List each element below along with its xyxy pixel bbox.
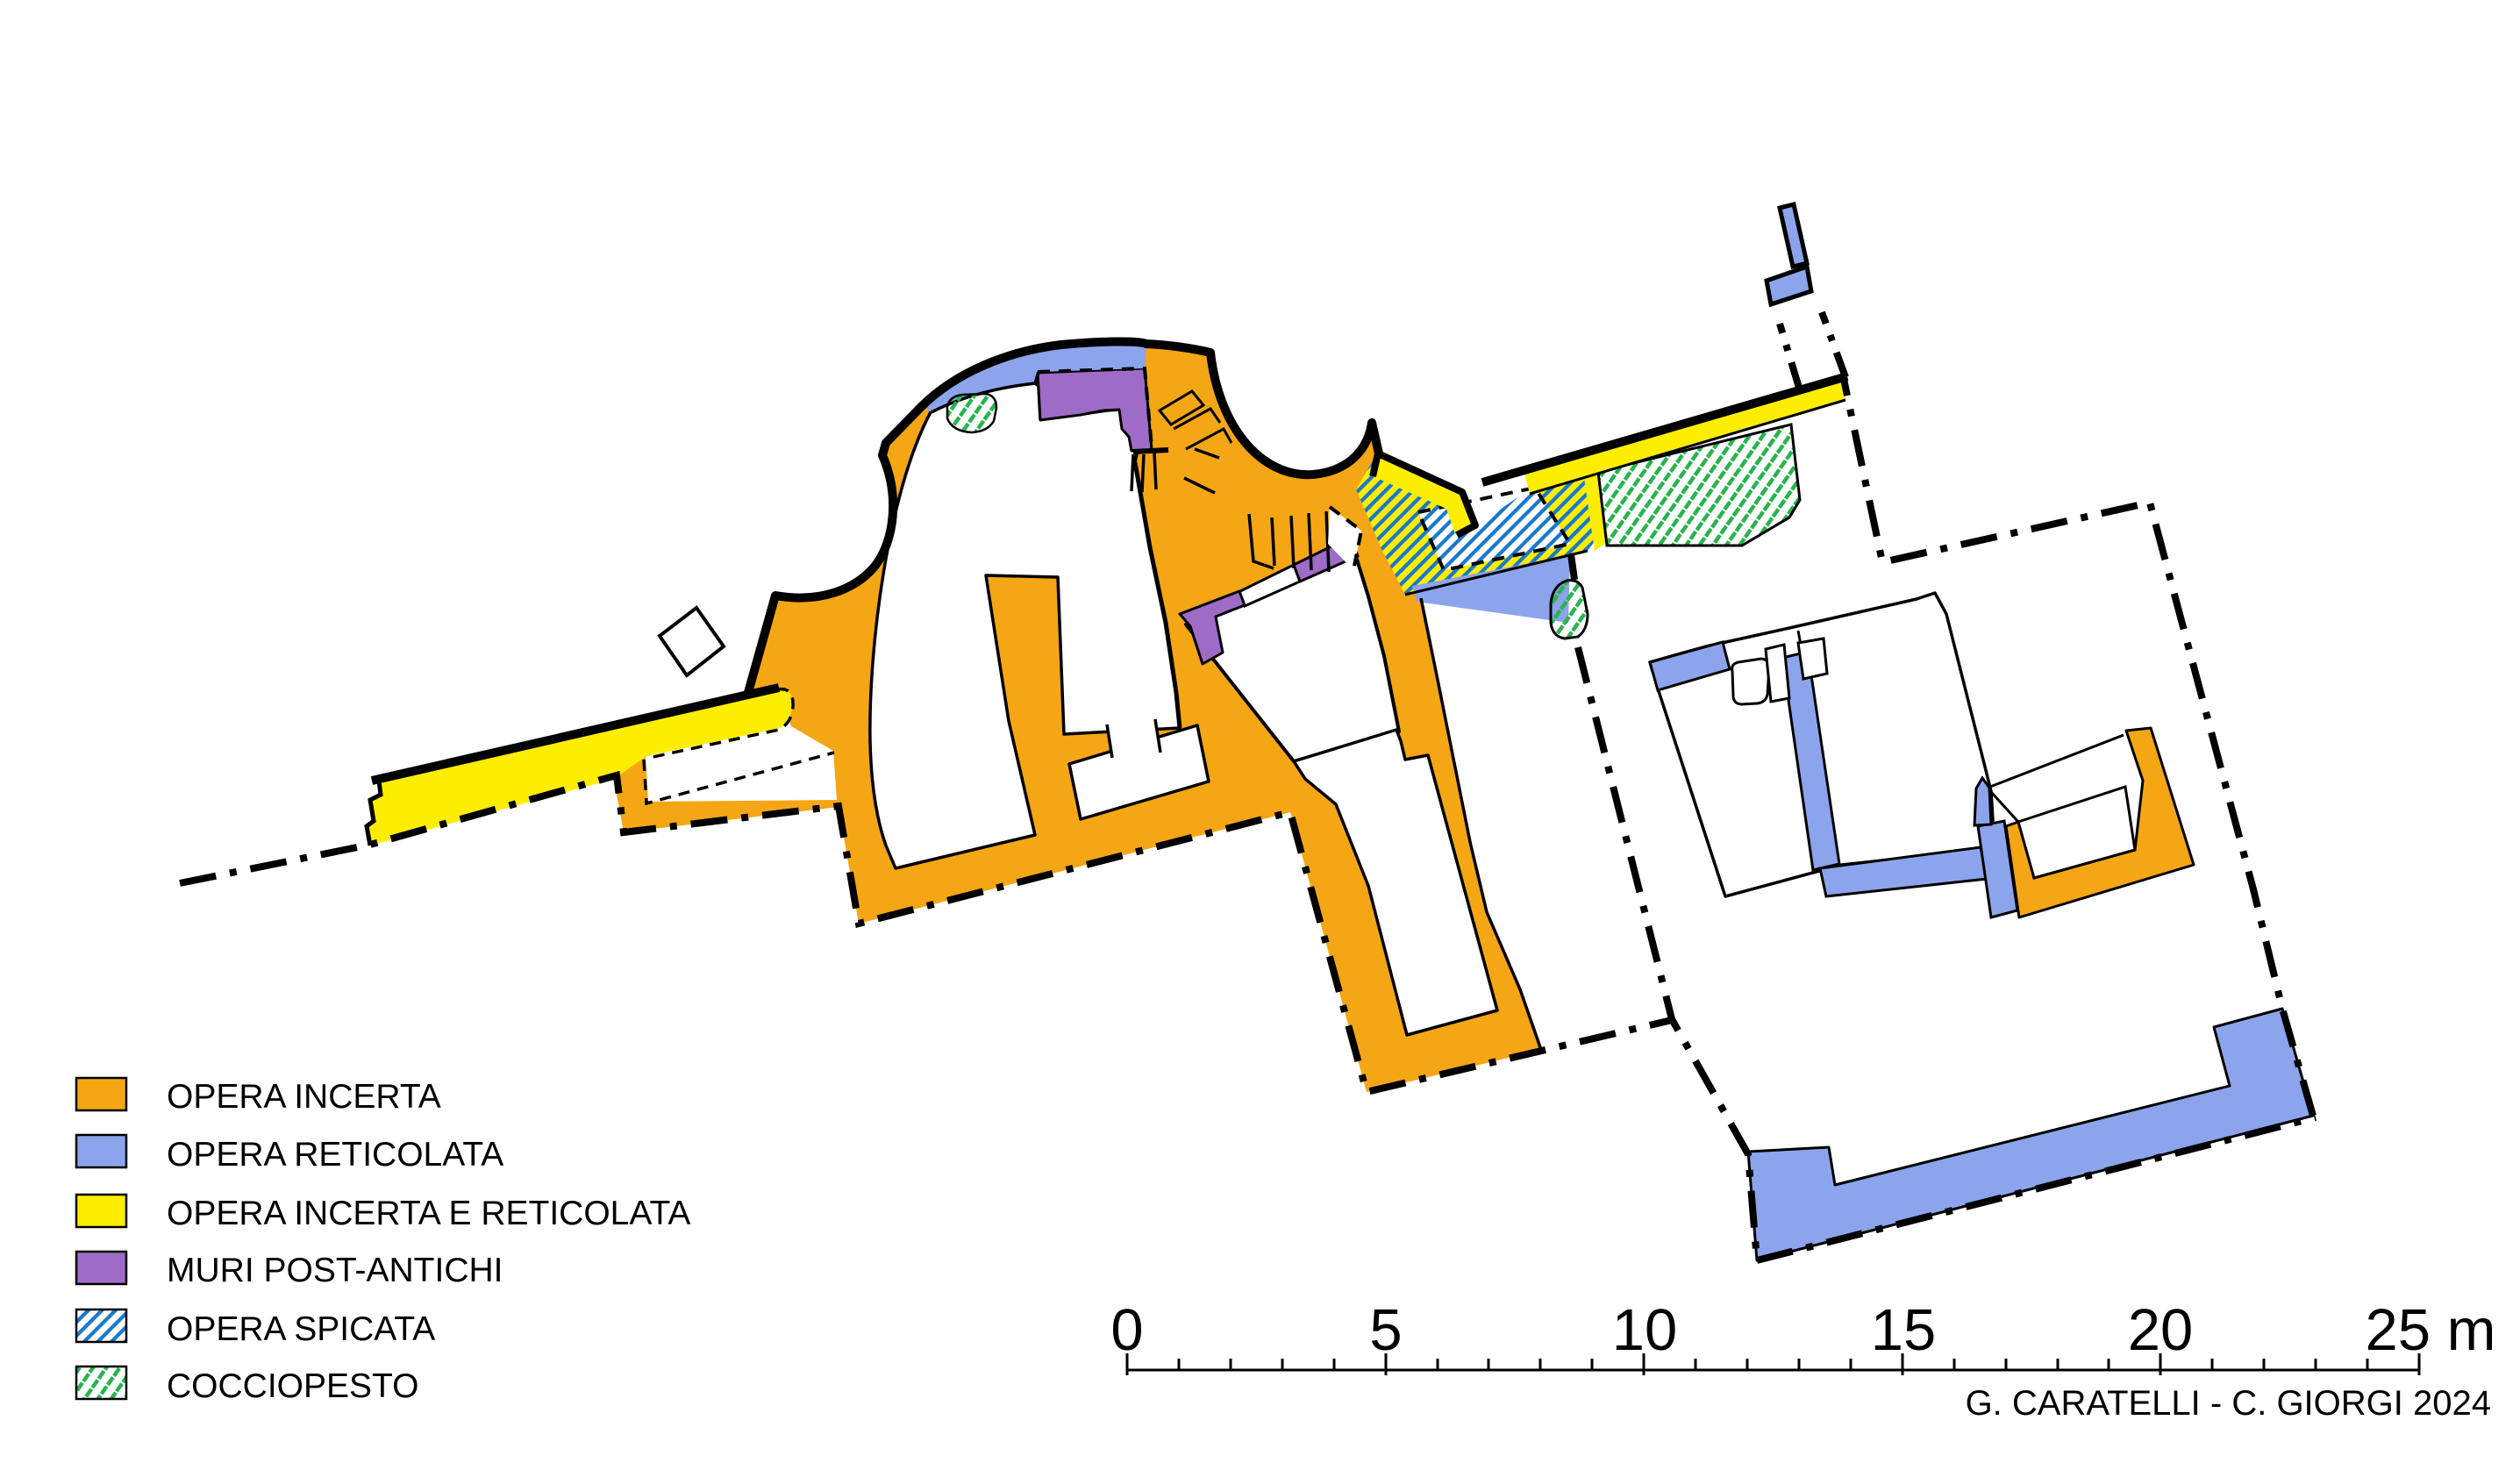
svg-text:25 m: 25 m: [2366, 1297, 2496, 1363]
svg-text:OPERA RETICOLATA: OPERA RETICOLATA: [167, 1136, 503, 1174]
svg-text:G. CARATELLI - C. GIORGI 2024: G. CARATELLI - C. GIORGI 2024: [1966, 1384, 2491, 1423]
svg-text:5: 5: [1369, 1297, 1402, 1363]
svg-text:10: 10: [1612, 1297, 1678, 1363]
svg-text:OPERA INCERTA: OPERA INCERTA: [167, 1078, 441, 1116]
svg-text:OPERA SPICATA: OPERA SPICATA: [167, 1310, 435, 1348]
svg-text:0: 0: [1110, 1297, 1143, 1363]
svg-text:20: 20: [2128, 1297, 2194, 1363]
svg-text:MURI POST-ANTICHI: MURI POST-ANTICHI: [167, 1252, 503, 1289]
svg-text:15: 15: [1871, 1297, 1937, 1363]
svg-text:COCCIOPESTO: COCCIOPESTO: [167, 1367, 419, 1405]
svg-text:OPERA INCERTA E RETICOLATA: OPERA INCERTA E RETICOLATA: [167, 1195, 690, 1232]
